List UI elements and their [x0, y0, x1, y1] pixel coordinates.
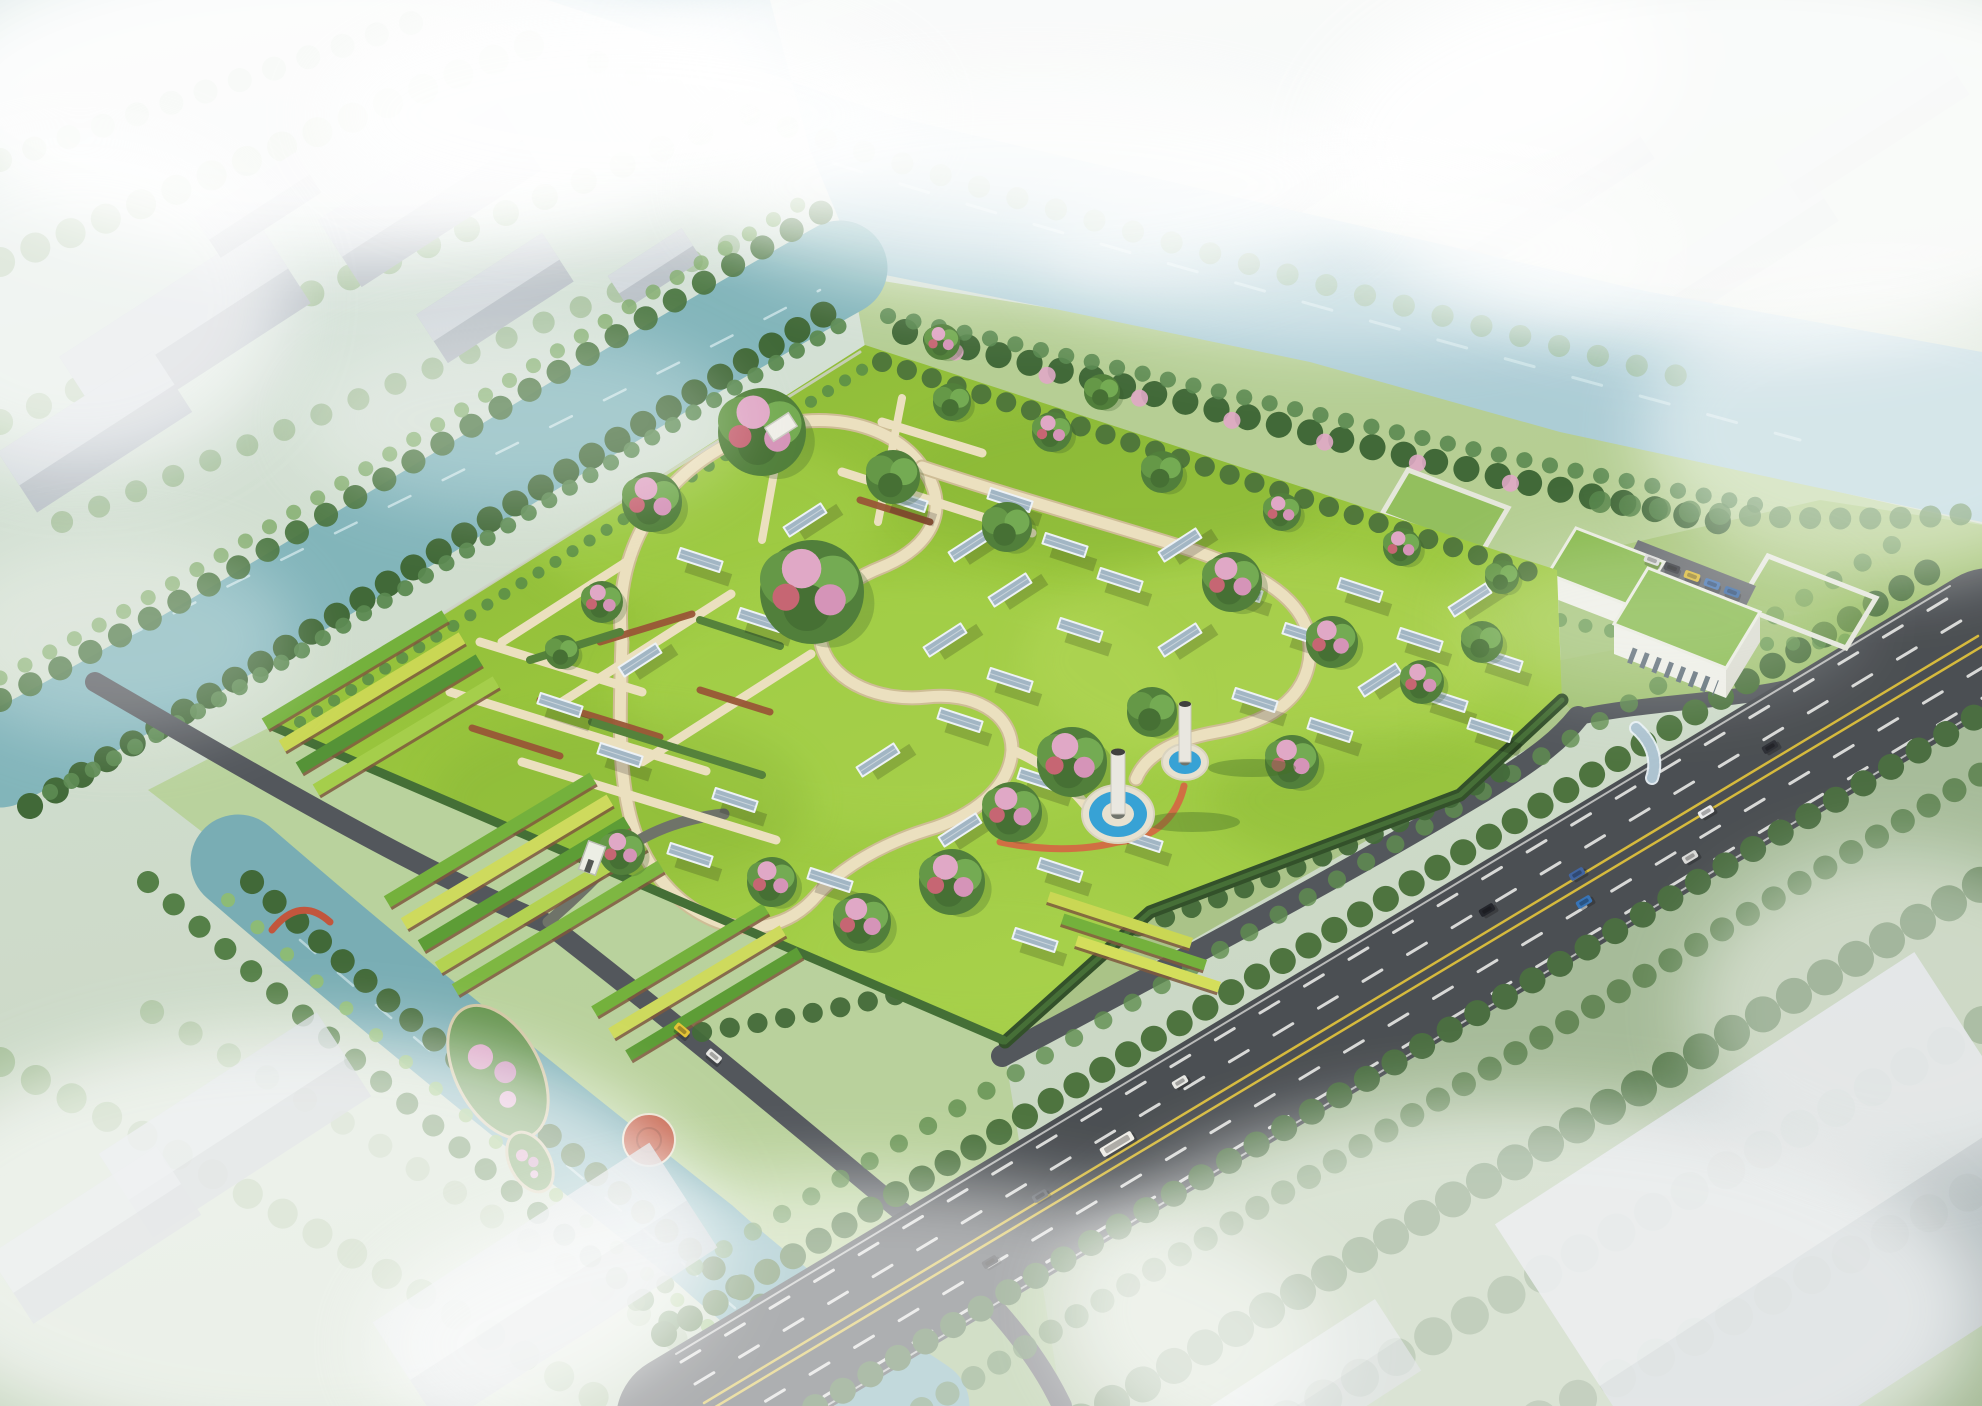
- screenshot-stage: [0, 0, 1982, 1406]
- aerial-rendering-canvas: [0, 0, 1982, 1406]
- atmosphere-veil: [0, 0, 1982, 1406]
